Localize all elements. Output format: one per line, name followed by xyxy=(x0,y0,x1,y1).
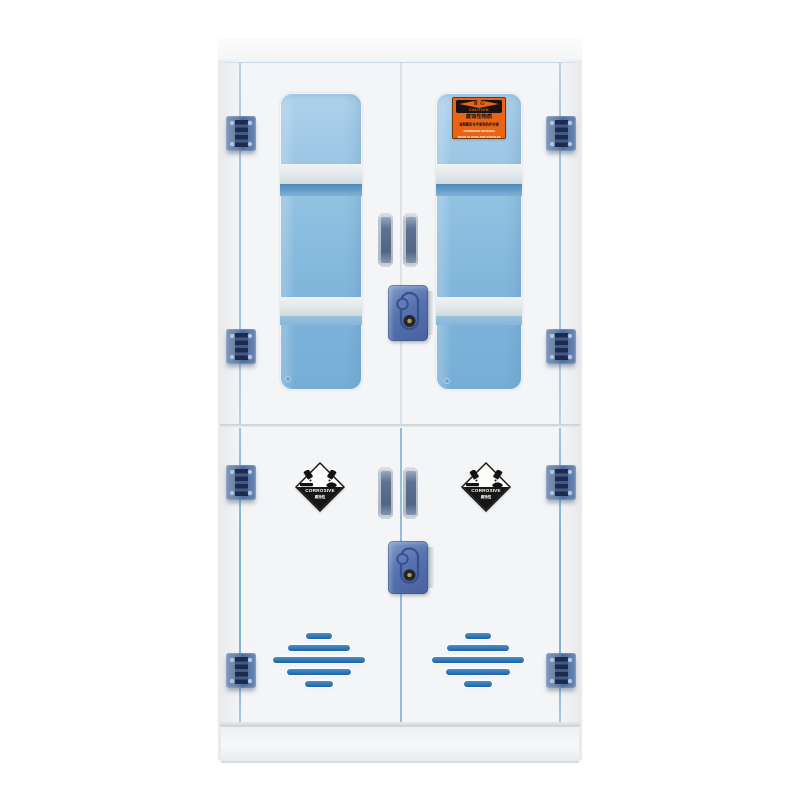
shelf-shadow xyxy=(280,316,362,325)
vent-slot xyxy=(447,645,509,651)
caution-line2-cn: 请佩戴防化手套和防护目镜 xyxy=(459,123,499,127)
vent-slot xyxy=(432,657,524,663)
caution-line1-en: CORROSIVE MATERIAL xyxy=(463,130,495,133)
corrosive-text-cn: 腐蚀性 xyxy=(469,495,504,499)
upper-left-door-handle xyxy=(378,213,393,267)
glass-window-right: 当 心 CAUTION 腐蚀性物质 请佩戴防化手套和防护目镜 CORROSIVE… xyxy=(436,93,522,390)
corrosive-pictogram-icon xyxy=(298,470,342,487)
upper-center-door-seam xyxy=(400,63,402,425)
logo-dot xyxy=(285,376,291,382)
vent-slot xyxy=(287,669,351,675)
logo-dot xyxy=(444,378,450,384)
corrosive-text-cn: 腐蚀性 xyxy=(303,495,338,499)
shelf-edge xyxy=(436,297,522,316)
vent-slot xyxy=(465,633,491,639)
lower-door-lock xyxy=(388,541,428,594)
caution-line1-cn: 腐蚀性物质 xyxy=(466,114,492,120)
kick-panel xyxy=(221,726,579,763)
lower-right-door-handle xyxy=(403,467,418,519)
shelf-edge xyxy=(436,164,522,184)
vent-slot xyxy=(305,681,333,687)
shelf-shadow xyxy=(436,316,522,325)
corrosive-diamond-left: CORROSIVE 腐蚀性 xyxy=(295,462,345,512)
upper-right-door-handle xyxy=(403,213,418,267)
vent-slot xyxy=(446,669,510,675)
vent-slot xyxy=(288,645,350,651)
corrosive-text: CORROSIVE xyxy=(301,489,340,494)
hinge-lower-left-bottom xyxy=(226,653,256,688)
keyhole-icon xyxy=(388,541,428,594)
caution-header-cn: 当 心 xyxy=(473,102,485,106)
upper-door-lock xyxy=(388,285,428,341)
chemical-storage-cabinet: 当 心 CAUTION 腐蚀性物质 请佩戴防化手套和防护目镜 CORROSIVE… xyxy=(218,38,582,762)
shelf-edge xyxy=(280,297,362,316)
shelf-edge xyxy=(280,164,362,184)
shelf-shadow xyxy=(280,184,362,196)
hinge-lower-right-top xyxy=(546,465,576,500)
caution-label-header: 当 心 CAUTION xyxy=(456,100,502,113)
hinge-upper-right-top xyxy=(546,116,576,151)
hinge-lower-left-top xyxy=(226,465,256,500)
hinge-upper-left-bottom xyxy=(226,329,256,364)
keyhole-icon xyxy=(388,285,428,341)
hinge-upper-right-bottom xyxy=(546,329,576,364)
corrosive-text: CORROSIVE xyxy=(467,489,506,494)
hinge-upper-left-top xyxy=(226,116,256,151)
corrosive-diamond-right: CORROSIVE 腐蚀性 xyxy=(461,462,511,512)
caution-header-en: CAUTION xyxy=(469,109,489,113)
shelf-shadow xyxy=(436,184,522,196)
corrosive-pictogram-icon xyxy=(464,470,508,487)
lower-lock-catch xyxy=(428,547,434,588)
caution-line2-en: WEAR GLOVES AND GOGGLES xyxy=(458,136,501,139)
caution-label: 当 心 CAUTION 腐蚀性物质 请佩戴防化手套和防护目镜 CORROSIVE… xyxy=(452,97,506,139)
vent-slot xyxy=(306,633,332,639)
vent-slot xyxy=(464,681,492,687)
cabinet-top-rail xyxy=(218,38,582,63)
lower-left-door-handle xyxy=(378,467,393,519)
glass-window-left xyxy=(280,93,362,390)
vent-slot xyxy=(273,657,365,663)
hinge-lower-right-bottom xyxy=(546,653,576,688)
mid-rail-seam xyxy=(220,424,580,427)
